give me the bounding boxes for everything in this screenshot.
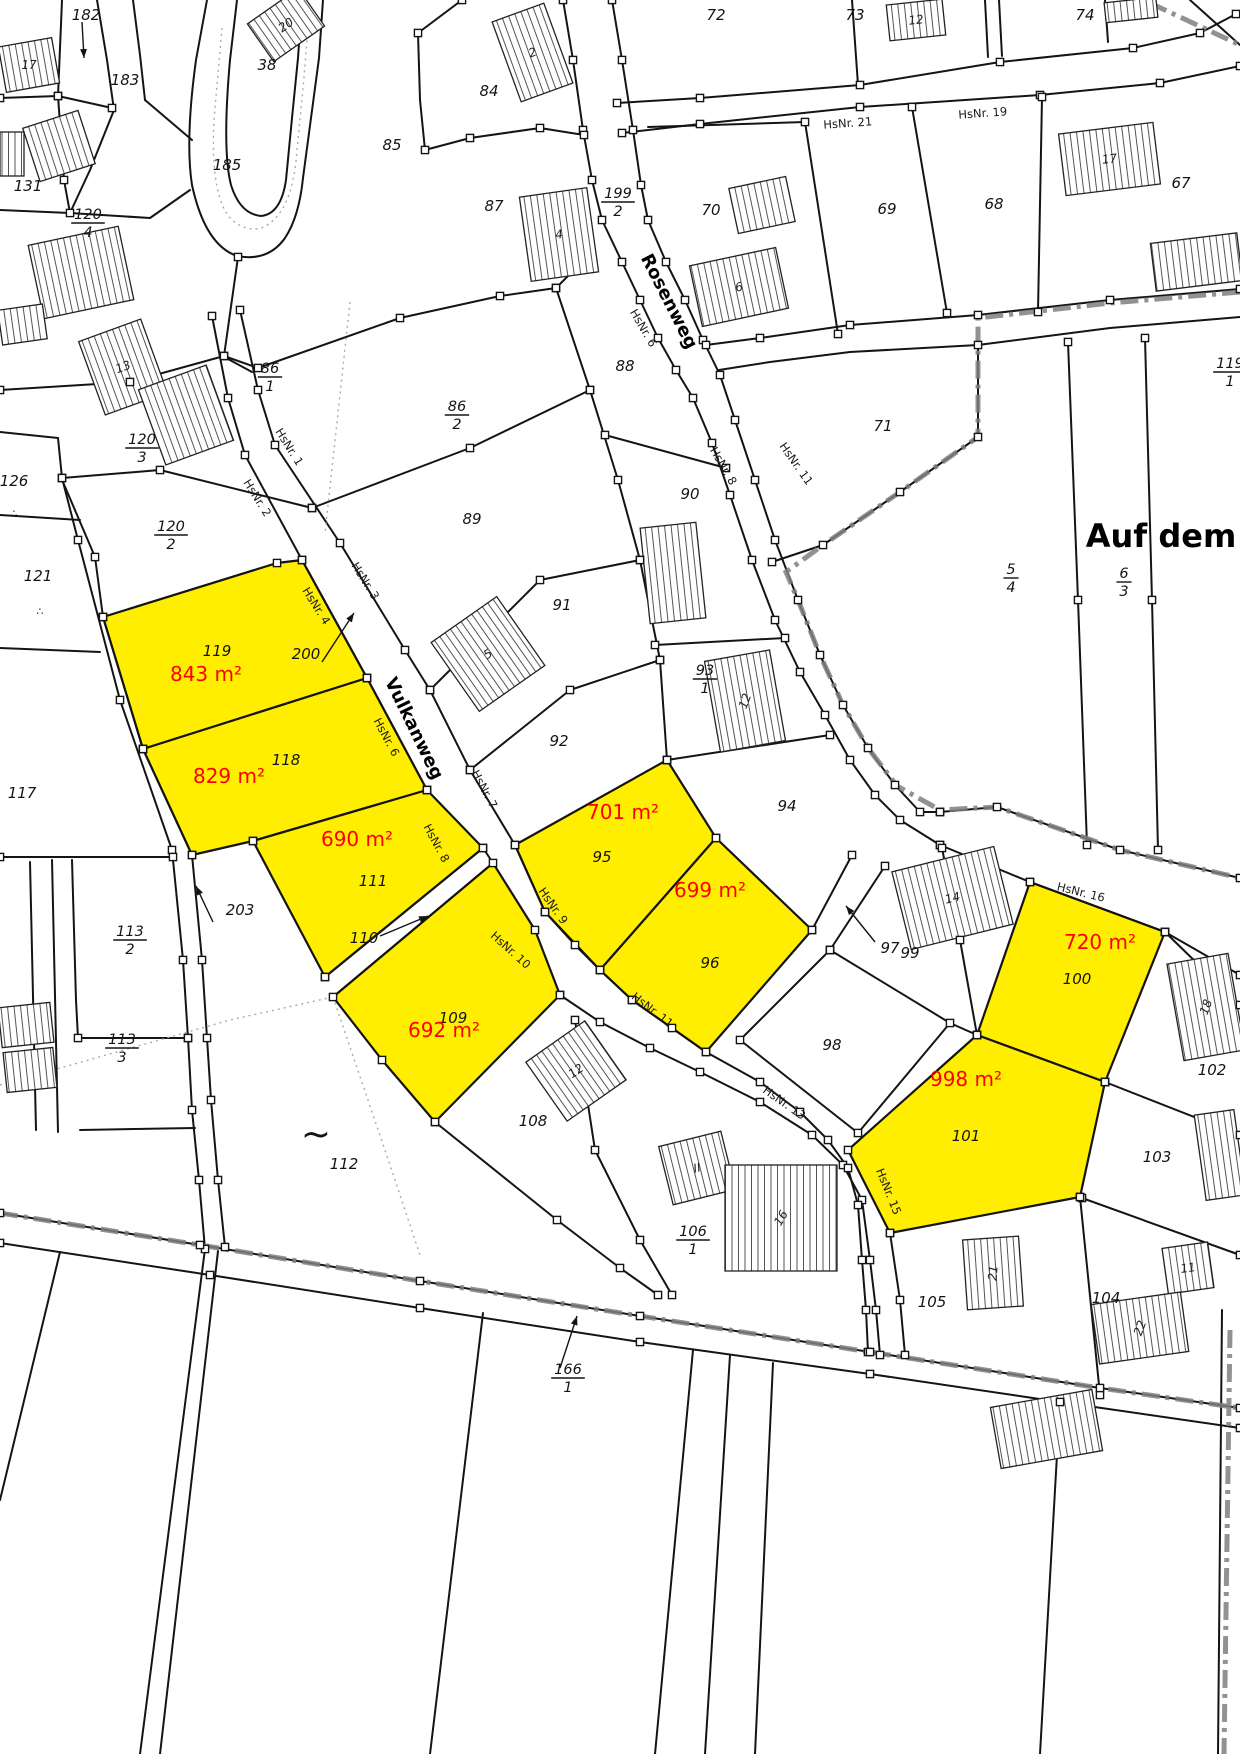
parcel-number-label: 74	[1075, 6, 1094, 24]
boundary-vertex-marker	[308, 504, 315, 511]
parcel-number-label: 94	[777, 797, 796, 815]
boundary-vertex-marker	[234, 253, 241, 260]
boundary-vertex-marker	[224, 394, 231, 401]
boundary-vertex-marker	[1148, 596, 1155, 603]
boundary-vertex-marker	[846, 321, 853, 328]
boundary-vertex-marker	[636, 1338, 643, 1345]
boundary-vertex-marker	[421, 146, 428, 153]
fraction-denominator: 3	[137, 450, 146, 466]
boundary-vertex-marker	[943, 309, 950, 316]
boundary-vertex-marker	[489, 859, 496, 866]
boundary-vertex-marker	[662, 258, 669, 265]
boundary-vertex-marker	[1034, 308, 1041, 315]
boundary-vertex-marker	[858, 1256, 865, 1263]
boundary-vertex-marker	[794, 596, 801, 603]
boundary-vertex-marker	[856, 81, 863, 88]
boundary-vertex-marker	[663, 756, 670, 763]
fraction-denominator: 1	[1225, 374, 1234, 390]
fraction-numerator: 120	[128, 432, 156, 448]
area-size-label: 692 m²	[408, 1018, 480, 1042]
boundary-vertex-marker	[862, 1306, 869, 1313]
boundary-vertex-marker	[689, 394, 696, 401]
map-symbol: ~	[301, 1114, 331, 1155]
parcel-number-label: 183	[111, 71, 140, 89]
boundary-vertex-marker	[1236, 1251, 1240, 1258]
boundary-vertex-marker	[1196, 29, 1203, 36]
building-number-label: 17	[21, 58, 37, 72]
boundary-vertex-marker	[196, 1241, 203, 1248]
building	[3, 1047, 57, 1092]
fraction-denominator: 4	[1006, 580, 1015, 596]
parcel-number-label: 92	[549, 732, 568, 750]
parcel-number-label: 89	[462, 510, 481, 528]
boundary-vertex-marker	[636, 1312, 643, 1319]
boundary-vertex-marker	[846, 756, 853, 763]
boundary-vertex-marker	[696, 94, 703, 101]
boundary-vertex-marker	[1064, 338, 1071, 345]
cadastral-map: 1720241361217512141812II16211122 1821831…	[0, 0, 1240, 1754]
fraction-numerator: 86	[448, 399, 466, 415]
boundary-vertex-marker	[184, 1034, 191, 1041]
boundary-vertex-marker	[866, 1370, 873, 1377]
fraction-numerator: 166	[554, 1362, 582, 1378]
parcel-number-label: 73	[845, 6, 864, 24]
boundary-vertex-marker	[646, 1044, 653, 1051]
boundary-vertex-marker	[91, 553, 98, 560]
fraction-denominator: 1	[563, 1380, 572, 1396]
boundary-vertex-marker	[768, 558, 775, 565]
boundary-vertex-marker	[116, 696, 123, 703]
boundary-vertex-marker	[169, 853, 176, 860]
boundary-vertex-marker	[636, 556, 643, 563]
fraction-numerator: 119	[1216, 356, 1240, 372]
boundary-vertex-marker	[329, 993, 336, 1000]
boundary-vertex-marker	[511, 841, 518, 848]
parcel-number-label: 87	[484, 197, 504, 215]
fraction-denominator: 1	[688, 1242, 697, 1258]
parcel-number-label: 84	[479, 82, 498, 100]
boundary-vertex-marker	[864, 744, 871, 751]
parcel-number-label: 110	[350, 929, 379, 947]
area-size-label: 699 m²	[674, 878, 746, 902]
boundary-vertex-marker	[378, 1056, 385, 1063]
parcel-number-label: 71	[873, 417, 892, 435]
boundary-vertex-marker	[1083, 841, 1090, 848]
boundary-vertex-marker	[696, 1068, 703, 1075]
boundary-vertex-marker	[466, 444, 473, 451]
boundary-vertex-marker	[271, 441, 278, 448]
boundary-vertex-marker	[321, 973, 328, 980]
building	[0, 304, 47, 345]
street-name-label: Auf dem	[1086, 517, 1237, 555]
boundary-vertex-marker	[844, 1164, 851, 1171]
map-symbol: ∴	[37, 605, 44, 618]
parcel-number-label: 96	[700, 954, 719, 972]
fraction-numerator: 93	[696, 663, 714, 679]
parcel-number-label: 111	[359, 872, 388, 890]
boundary-vertex-marker	[571, 941, 578, 948]
area-size-label: 829 m²	[193, 764, 265, 788]
parcel-number-label: 131	[14, 177, 43, 195]
boundary-vertex-marker	[74, 536, 81, 543]
boundary-vertex-marker	[1096, 1384, 1103, 1391]
boundary-vertex-marker	[618, 56, 625, 63]
boundary-vertex-marker	[844, 1146, 851, 1153]
boundary-vertex-marker	[748, 556, 755, 563]
boundary-vertex-marker	[681, 296, 688, 303]
boundary-vertex-marker	[826, 731, 833, 738]
boundary-vertex-marker	[839, 701, 846, 708]
boundary-vertex-marker	[614, 476, 621, 483]
area-size-label: 998 m²	[930, 1067, 1002, 1091]
building-outline	[640, 522, 706, 623]
boundary-vertex-marker	[273, 559, 280, 566]
boundary-vertex-marker	[608, 0, 615, 4]
parcel-number-label: 95	[592, 848, 611, 866]
boundary-vertex-marker	[536, 576, 543, 583]
fraction-numerator: 106	[679, 1224, 707, 1240]
boundary-vertex-marker	[298, 556, 305, 563]
fraction-denominator: 2	[166, 537, 175, 553]
boundary-vertex-marker	[756, 1098, 763, 1105]
boundary-vertex-marker	[221, 1243, 228, 1250]
building-number-label: 11	[1179, 1260, 1196, 1276]
parcel-number-label: 203	[226, 901, 255, 919]
boundary-vertex-marker	[936, 808, 943, 815]
boundary-vertex-marker	[208, 312, 215, 319]
boundary-vertex-marker	[756, 1078, 763, 1085]
parcel-number-label: 72	[706, 6, 725, 24]
boundary-vertex-marker	[596, 1018, 603, 1025]
fraction-denominator: 3	[117, 1050, 126, 1066]
boundary-vertex-marker	[974, 341, 981, 348]
building-outline	[1150, 233, 1240, 291]
parcel-number-label: 91	[552, 596, 571, 614]
boundary-vertex-marker	[601, 431, 608, 438]
boundary-vertex-marker	[580, 131, 587, 138]
boundary-vertex-marker	[214, 1176, 221, 1183]
boundary-vertex-marker	[891, 781, 898, 788]
boundary-vertex-marker	[696, 120, 703, 127]
boundary-vertex-marker	[716, 371, 723, 378]
boundary-vertex-marker	[401, 646, 408, 653]
boundary-vertex-marker	[866, 1348, 873, 1355]
boundary-vertex-marker	[834, 330, 841, 337]
boundary-vertex-marker	[431, 1118, 438, 1125]
parcel-number-label: 118	[272, 751, 301, 769]
boundary-vertex-marker	[1236, 1131, 1240, 1138]
building	[640, 522, 706, 623]
boundary-vertex-marker	[1038, 93, 1045, 100]
boundary-vertex-marker	[559, 0, 566, 4]
boundary-vertex-marker	[0, 1209, 4, 1216]
boundary-vertex-marker	[702, 1048, 709, 1055]
boundary-vertex-marker	[616, 1264, 623, 1271]
boundary-vertex-marker	[1232, 10, 1239, 17]
boundary-vertex-marker	[596, 966, 603, 973]
boundary-vertex-marker	[712, 834, 719, 841]
parcel-number-label: 38	[257, 56, 276, 74]
boundary-vertex-marker	[188, 851, 195, 858]
boundary-vertex-marker	[816, 651, 823, 658]
boundary-vertex-marker	[668, 1291, 675, 1298]
boundary-vertex-marker	[416, 1304, 423, 1311]
boundary-vertex-marker	[824, 1136, 831, 1143]
boundary-vertex-marker	[195, 1176, 202, 1183]
boundary-vertex-marker	[588, 176, 595, 183]
boundary-vertex-marker	[771, 536, 778, 543]
boundary-vertex-marker	[618, 258, 625, 265]
boundary-vertex-marker	[881, 862, 888, 869]
boundary-vertex-marker	[188, 1106, 195, 1113]
boundary-vertex-marker	[552, 284, 559, 291]
building-outline	[0, 1002, 54, 1047]
boundary-vertex-marker	[1101, 1078, 1108, 1085]
parcel-number-label: 102	[1198, 1061, 1227, 1079]
boundary-vertex-marker	[569, 56, 576, 63]
boundary-vertex-marker	[876, 1351, 883, 1358]
boundary-vertex-marker	[781, 634, 788, 641]
boundary-vertex-marker	[973, 1031, 980, 1038]
parcel-number-label: 90	[680, 485, 699, 503]
parcel-number-label: 85	[382, 136, 401, 154]
boundary-vertex-marker	[956, 936, 963, 943]
parcel-number-label: 67	[1171, 174, 1191, 192]
boundary-vertex-marker	[1236, 1404, 1240, 1411]
boundary-vertex-marker	[644, 216, 651, 223]
fraction-numerator: 86	[261, 361, 279, 377]
parcel-number-label: 88	[615, 357, 634, 375]
building: 11	[1162, 1242, 1214, 1294]
boundary-vertex-marker	[854, 1129, 861, 1136]
boundary-vertex-marker	[571, 1016, 578, 1023]
building	[0, 132, 24, 176]
building-outline	[0, 132, 24, 176]
boundary-vertex-marker	[254, 386, 261, 393]
parcel-number-label: 69	[877, 200, 896, 218]
fraction-numerator: 6	[1119, 566, 1128, 582]
boundary-vertex-marker	[1074, 596, 1081, 603]
fraction-numerator: 120	[157, 519, 185, 535]
boundary-vertex-marker	[1056, 1398, 1063, 1405]
boundary-vertex-marker	[553, 1216, 560, 1223]
boundary-vertex-marker	[1236, 971, 1240, 978]
boundary-vertex-marker	[66, 209, 73, 216]
boundary-vertex-marker	[74, 1034, 81, 1041]
boundary-vertex-marker	[751, 476, 758, 483]
boundary-vertex-marker	[702, 341, 709, 348]
boundary-vertex-marker	[708, 439, 715, 446]
boundary-vertex-marker	[896, 488, 903, 495]
boundary-vertex-marker	[654, 1291, 661, 1298]
boundary-vertex-marker	[731, 416, 738, 423]
boundary-vertex-marker	[536, 124, 543, 131]
boundary-vertex-marker	[1236, 1001, 1240, 1008]
boundary-vertex-marker	[566, 686, 573, 693]
building-number-label: 21	[985, 1265, 1000, 1281]
boundary-vertex-marker	[901, 1351, 908, 1358]
boundary-vertex-marker	[1154, 846, 1161, 853]
boundary-vertex-marker	[872, 1306, 879, 1313]
parcel-number-label: 70	[701, 201, 720, 219]
boundary-vertex-marker	[908, 103, 915, 110]
fraction-denominator: 1	[265, 379, 274, 395]
parcel-number-label: 68	[984, 195, 1003, 213]
fraction-numerator: 113	[108, 1032, 136, 1048]
fraction-numerator: 5	[1006, 562, 1015, 578]
boundary-vertex-marker	[206, 1271, 213, 1278]
building: 17	[0, 38, 60, 93]
boundary-vertex-marker	[636, 296, 643, 303]
boundary-vertex-marker	[416, 1277, 423, 1284]
boundary-vertex-marker	[0, 853, 4, 860]
boundary-vertex-marker	[108, 104, 115, 111]
boundary-vertex-marker	[821, 711, 828, 718]
area-size-label: 701 m²	[587, 800, 659, 824]
boundary-vertex-marker	[1161, 928, 1168, 935]
fraction-numerator: 199	[604, 186, 632, 202]
building	[1150, 233, 1240, 291]
parcel-number-label: 185	[213, 156, 242, 174]
parcel-number-label: 182	[72, 6, 101, 24]
boundary-vertex-marker	[203, 1034, 210, 1041]
boundary-vertex-marker	[656, 656, 663, 663]
building: 21	[963, 1236, 1024, 1310]
building-number-label: 12	[908, 12, 925, 28]
building: 12	[886, 0, 945, 41]
building-outline	[3, 1047, 57, 1092]
boundary-vertex-marker	[156, 466, 163, 473]
boundary-vertex-marker	[629, 126, 636, 133]
boundary-vertex-marker	[598, 216, 605, 223]
boundary-vertex-marker	[591, 1146, 598, 1153]
boundary-vertex-marker	[99, 613, 106, 620]
boundary-vertex-marker	[207, 1096, 214, 1103]
boundary-vertex-marker	[886, 1229, 893, 1236]
boundary-vertex-marker	[736, 1036, 743, 1043]
boundary-vertex-marker	[168, 846, 175, 853]
fraction-denominator: 2	[613, 204, 622, 220]
boundary-vertex-marker	[974, 433, 981, 440]
fraction-denominator: 3	[1119, 584, 1128, 600]
boundary-vertex-marker	[458, 0, 465, 4]
boundary-vertex-marker	[826, 946, 833, 953]
boundary-vertex-marker	[496, 292, 503, 299]
boundary-vertex-marker	[938, 844, 945, 851]
boundary-vertex-marker	[58, 474, 65, 481]
building	[0, 1002, 54, 1047]
parcel-number-label: 104	[1092, 1289, 1121, 1307]
boundary-vertex-marker	[396, 314, 403, 321]
parcel-number-label: 126	[0, 472, 28, 490]
boundary-vertex-marker	[479, 844, 486, 851]
boundary-vertex-marker	[241, 451, 248, 458]
boundary-vertex-marker	[1116, 846, 1123, 853]
fraction-denominator: 4	[83, 225, 92, 241]
boundary-vertex-marker	[819, 541, 826, 548]
building: 17	[1059, 122, 1161, 195]
fraction-numerator: 113	[116, 924, 144, 940]
area-size-label: 843 m²	[170, 662, 242, 686]
boundary-vertex-marker	[1096, 1391, 1103, 1398]
boundary-vertex-marker	[586, 386, 593, 393]
boundary-vertex-marker	[796, 668, 803, 675]
building: 16	[725, 1165, 837, 1271]
area-size-label: 690 m²	[321, 827, 393, 851]
parcel-number-label: 112	[330, 1155, 359, 1173]
parcel-number-label: 103	[1143, 1148, 1172, 1166]
boundary-vertex-marker	[613, 99, 620, 106]
boundary-vertex-marker	[363, 674, 370, 681]
boundary-vertex-marker	[426, 686, 433, 693]
boundary-vertex-marker	[466, 134, 473, 141]
boundary-vertex-marker	[801, 118, 808, 125]
boundary-vertex-marker	[1076, 1193, 1083, 1200]
parcel-number-label: 119	[203, 642, 232, 660]
boundary-vertex-marker	[651, 641, 658, 648]
area-size-label: 720 m²	[1064, 930, 1136, 954]
boundary-vertex-marker	[198, 956, 205, 963]
parcel-number-label: 121	[24, 567, 53, 585]
parcel-number-label: 105	[918, 1293, 947, 1311]
parcel-number-label: 117	[8, 784, 37, 802]
boundary-vertex-marker	[856, 103, 863, 110]
boundary-vertex-marker	[423, 786, 430, 793]
boundary-vertex-marker	[808, 1131, 815, 1138]
boundary-vertex-marker	[946, 1019, 953, 1026]
parcel-number-label: 100	[1063, 970, 1092, 988]
fraction-denominator: 2	[452, 417, 461, 433]
boundary-vertex-marker	[672, 366, 679, 373]
boundary-vertex-marker	[1156, 79, 1163, 86]
boundary-vertex-marker	[531, 926, 538, 933]
cadastral-map-page: 1720241361217512141812II16211122 1821831…	[0, 0, 1240, 1754]
boundary-vertex-marker	[139, 745, 146, 752]
parcel-number-label: 101	[952, 1127, 981, 1145]
boundary-vertex-marker	[871, 791, 878, 798]
boundary-vertex-marker	[996, 58, 1003, 65]
boundary-vertex-marker	[808, 926, 815, 933]
parcel-number-label: 98	[822, 1036, 841, 1054]
boundary-vertex-marker	[637, 181, 644, 188]
boundary-vertex-marker	[336, 539, 343, 546]
boundary-vertex-marker	[993, 803, 1000, 810]
boundary-vertex-marker	[236, 306, 243, 313]
boundary-vertex-marker	[771, 616, 778, 623]
boundary-vertex-marker	[618, 129, 625, 136]
boundary-vertex-marker	[866, 1256, 873, 1263]
boundary-vertex-marker	[1236, 285, 1240, 292]
building-number-label: 17	[1101, 151, 1118, 167]
fraction-denominator: 2	[125, 942, 134, 958]
fraction-numerator: 120	[74, 207, 102, 223]
boundary-vertex-marker	[1129, 44, 1136, 51]
boundary-vertex-marker	[896, 1296, 903, 1303]
boundary-vertex-marker	[0, 94, 4, 101]
boundary-vertex-marker	[916, 808, 923, 815]
boundary-vertex-marker	[854, 1201, 861, 1208]
boundary-vertex-marker	[0, 1239, 4, 1246]
parcel-number-label: 108	[519, 1112, 548, 1130]
parcel-number-label: 97	[880, 939, 900, 957]
boundary-vertex-marker	[220, 352, 227, 359]
map-symbol: ∴	[11, 507, 18, 520]
boundary-vertex-marker	[556, 991, 563, 998]
building: 4	[519, 188, 598, 282]
boundary-vertex-marker	[126, 378, 133, 385]
parcel-number-label: 99	[900, 944, 919, 962]
boundary-vertex-marker	[60, 176, 67, 183]
